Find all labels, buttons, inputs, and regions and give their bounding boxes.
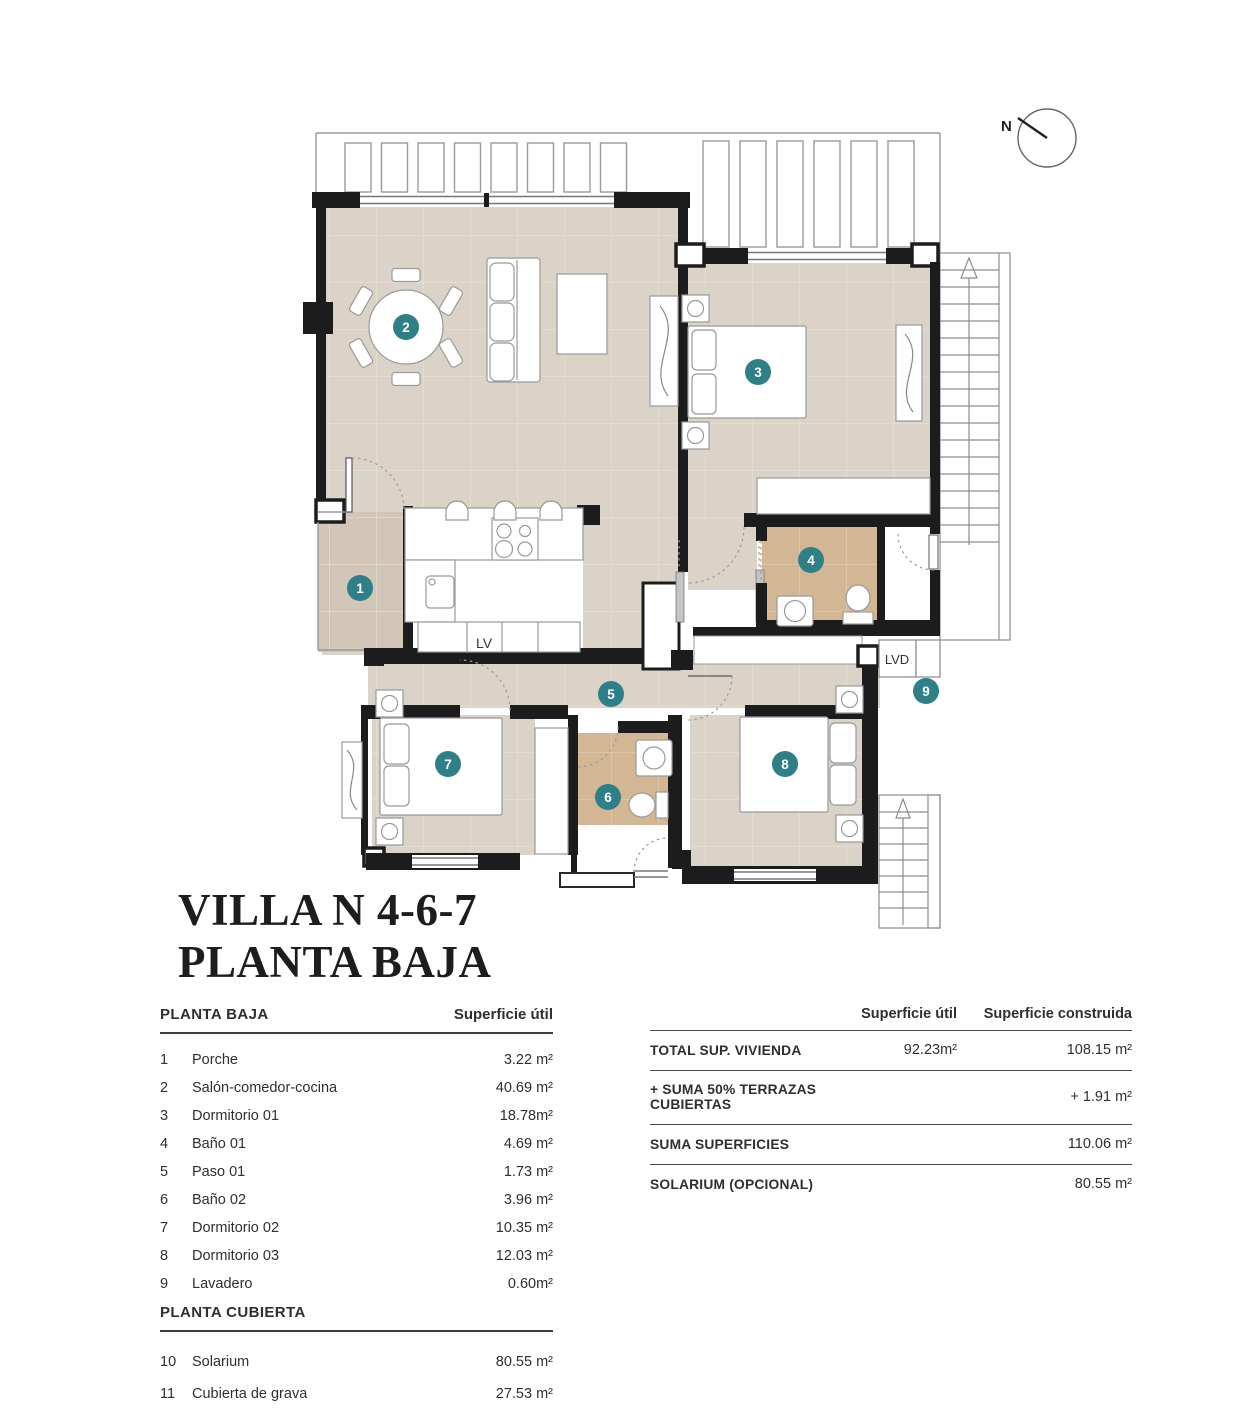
room-marker-4: 4 — [798, 547, 824, 573]
summary-header: Superficie útil Superficie construida — [650, 1006, 1132, 1031]
laundry-machine-label: LVD — [885, 652, 909, 667]
page-title: VILLA N 4-6-7 PLANTA BAJA — [178, 884, 491, 988]
north-label: N — [1001, 118, 1012, 135]
room-area: 0.60m² — [508, 1276, 553, 1292]
bar-stools — [446, 501, 562, 520]
room-number: 10 — [160, 1354, 192, 1370]
room-area: 40.69 m² — [496, 1080, 553, 1096]
stairs-up-arrow — [896, 799, 910, 818]
north-compass-icon: N — [1001, 109, 1076, 167]
room-number: 2 — [160, 1080, 192, 1096]
summary-label: + SUMA 50% TERRAZAS CUBIERTAS — [650, 1082, 817, 1112]
room-number: 1 — [160, 1052, 192, 1068]
staircase-upper — [940, 253, 1010, 640]
room-name: Solarium — [192, 1354, 496, 1370]
dishwasher-label: LV — [476, 635, 493, 651]
room-number: 11 — [160, 1386, 192, 1402]
area-column-header: Superficie útil — [454, 1006, 553, 1023]
room-marker-9: 9 — [913, 678, 939, 704]
planta-baja-rows: 1Porche3.22 m²2Salón-comedor-cocina40.69… — [160, 1034, 553, 1298]
room-area: 1.73 m² — [504, 1164, 553, 1180]
table-row: 7Dormitorio 0210.35 m² — [160, 1214, 553, 1242]
wardrobe-dormitorio-02 — [535, 728, 568, 854]
svg-text:6: 6 — [604, 790, 612, 805]
room-number: 8 — [160, 1248, 192, 1264]
room-name: Baño 01 — [192, 1136, 504, 1152]
room-area: 80.55 m² — [496, 1354, 553, 1370]
room-area: 4.69 m² — [504, 1136, 553, 1152]
room-number: 5 — [160, 1164, 192, 1180]
room-area: 12.03 m² — [496, 1248, 553, 1264]
summary-label: SUMA SUPERFICIES — [650, 1137, 817, 1152]
summary-row: SUMA SUPERFICIES110.06 m² — [650, 1125, 1132, 1165]
planta-baja-header: PLANTA BAJA Superficie útil — [160, 1006, 553, 1034]
table-row: 9Lavadero0.60m² — [160, 1270, 553, 1298]
room-name: Lavadero — [192, 1276, 508, 1292]
room-name: Porche — [192, 1052, 504, 1068]
title-line-2: PLANTA BAJA — [178, 936, 491, 988]
room-area: 3.96 m² — [504, 1192, 553, 1208]
room-name: Cubierta de grava — [192, 1386, 496, 1402]
room-number: 9 — [160, 1276, 192, 1292]
table-row: 6Baño 023.96 m² — [160, 1186, 553, 1214]
summary-constr-value: 80.55 m² — [957, 1176, 1132, 1192]
planta-cubierta-header: PLANTA CUBIERTA — [160, 1304, 553, 1332]
room-number: 6 — [160, 1192, 192, 1208]
room-marker-1: 1 — [347, 575, 373, 601]
room-name: Dormitorio 01 — [192, 1108, 500, 1124]
room-number: 3 — [160, 1108, 192, 1124]
room-area: 10.35 m² — [496, 1220, 553, 1236]
room-name: Paso 01 — [192, 1164, 504, 1180]
title-line-1: VILLA N 4-6-7 — [178, 884, 491, 936]
summary-constr-value: + 1.91 m² — [957, 1089, 1132, 1105]
summary-row: SOLARIUM (OPCIONAL)80.55 m² — [650, 1165, 1132, 1204]
summary-label: TOTAL SUP. VIVIENDA — [650, 1043, 817, 1058]
table-row: 5Paso 011.73 m² — [160, 1158, 553, 1186]
room-area: 18.78m² — [500, 1108, 553, 1124]
room-marker-6: 6 — [595, 784, 621, 810]
section-label: PLANTA CUBIERTA — [160, 1304, 306, 1321]
room-number: 4 — [160, 1136, 192, 1152]
room-name: Dormitorio 02 — [192, 1220, 496, 1236]
table-row: 10Solarium80.55 m² — [160, 1346, 553, 1378]
svg-text:5: 5 — [607, 687, 615, 702]
summary-constr-value: 110.06 m² — [957, 1136, 1132, 1152]
summary-util-value: 92.23m² — [817, 1042, 957, 1058]
room-marker-8: 8 — [772, 751, 798, 777]
table-row: 3Dormitorio 0118.78m² — [160, 1102, 553, 1130]
room-areas-table: PLANTA BAJA Superficie útil 1Porche3.22 … — [160, 1006, 553, 1410]
svg-text:9: 9 — [922, 684, 930, 699]
svg-text:4: 4 — [807, 553, 815, 568]
stairs-up-arrow — [961, 258, 977, 278]
room-area: 27.53 m² — [496, 1386, 553, 1402]
room-area: 3.22 m² — [504, 1052, 553, 1068]
summary-row: + SUMA 50% TERRAZAS CUBIERTAS+ 1.91 m² — [650, 1071, 1132, 1125]
table-row: 2Salón-comedor-cocina40.69 m² — [160, 1074, 553, 1102]
table-row: 11Cubierta de grava27.53 m² — [160, 1378, 553, 1410]
pergola-slats-right — [703, 141, 914, 247]
summary-rows: TOTAL SUP. VIVIENDA92.23m²108.15 m²+ SUM… — [650, 1031, 1132, 1204]
window-curtain-living — [650, 296, 678, 406]
staircase-lower — [879, 795, 940, 928]
svg-text:3: 3 — [754, 365, 762, 380]
room-marker-3: 3 — [745, 359, 771, 385]
room-marker-7: 7 — [435, 751, 461, 777]
floor-plan-drawing: LV LVD N 123456789 — [0, 0, 1253, 960]
svg-text:2: 2 — [402, 320, 410, 335]
svg-text:1: 1 — [356, 581, 364, 596]
util-column-header: Superficie útil — [817, 1006, 957, 1022]
summary-label: SOLARIUM (OPCIONAL) — [650, 1177, 817, 1192]
window-curtain-dorm01 — [896, 325, 922, 421]
sofa — [487, 258, 540, 382]
pergola-slats-left — [345, 143, 627, 192]
constr-column-header: Superficie construida — [957, 1006, 1132, 1022]
floor-plan-page: LV LVD N 123456789 VILLA N 4-6-7 PLANTA … — [0, 0, 1253, 1425]
svg-text:8: 8 — [781, 757, 789, 772]
room-name: Salón-comedor-cocina — [192, 1080, 496, 1096]
room-name: Dormitorio 03 — [192, 1248, 496, 1264]
room-marker-5: 5 — [598, 681, 624, 707]
table-row: 8Dormitorio 0312.03 m² — [160, 1242, 553, 1270]
section-label: PLANTA BAJA — [160, 1006, 269, 1023]
room-number: 7 — [160, 1220, 192, 1236]
surface-summary-table: Superficie útil Superficie construida TO… — [650, 1006, 1132, 1204]
summary-constr-value: 108.15 m² — [957, 1042, 1132, 1058]
table-row: 4Baño 014.69 m² — [160, 1130, 553, 1158]
summary-row: TOTAL SUP. VIVIENDA92.23m²108.15 m² — [650, 1031, 1132, 1071]
room-name: Baño 02 — [192, 1192, 504, 1208]
tv-sideboard — [557, 274, 607, 354]
wardrobe-dormitorio-01 — [757, 478, 930, 514]
svg-text:7: 7 — [444, 757, 452, 772]
table-row: 1Porche3.22 m² — [160, 1046, 553, 1074]
planta-cubierta-rows: 10Solarium80.55 m²11Cubierta de grava27.… — [160, 1332, 553, 1410]
room-marker-2: 2 — [393, 314, 419, 340]
